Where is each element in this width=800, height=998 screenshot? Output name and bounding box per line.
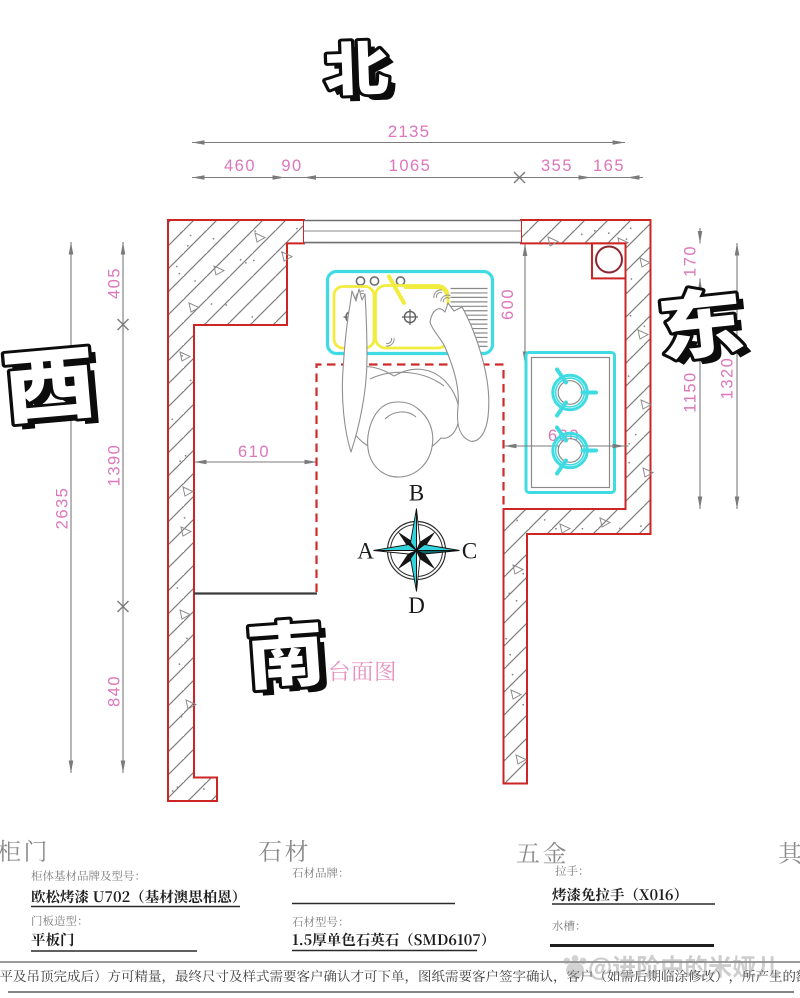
svg-text:460: 460 xyxy=(224,157,256,175)
svg-text:A: A xyxy=(357,539,374,564)
svg-text:C: C xyxy=(462,539,477,564)
svg-text:90: 90 xyxy=(281,157,302,175)
svg-text:610: 610 xyxy=(238,443,270,461)
svg-text:840: 840 xyxy=(106,675,124,707)
svg-text:165: 165 xyxy=(593,157,625,175)
svg-text:2135: 2135 xyxy=(388,122,431,141)
svg-text:170: 170 xyxy=(682,245,700,277)
svg-text:1390: 1390 xyxy=(106,444,124,487)
svg-text:2635: 2635 xyxy=(54,487,72,530)
svg-text:1320: 1320 xyxy=(719,357,737,400)
svg-text:D: D xyxy=(408,593,425,618)
svg-text:B: B xyxy=(409,481,424,506)
svg-text:405: 405 xyxy=(106,267,124,299)
svg-text:1065: 1065 xyxy=(389,157,432,175)
svg-text:1150: 1150 xyxy=(682,371,700,412)
svg-text:600: 600 xyxy=(499,288,517,320)
svg-text:355: 355 xyxy=(541,157,573,175)
